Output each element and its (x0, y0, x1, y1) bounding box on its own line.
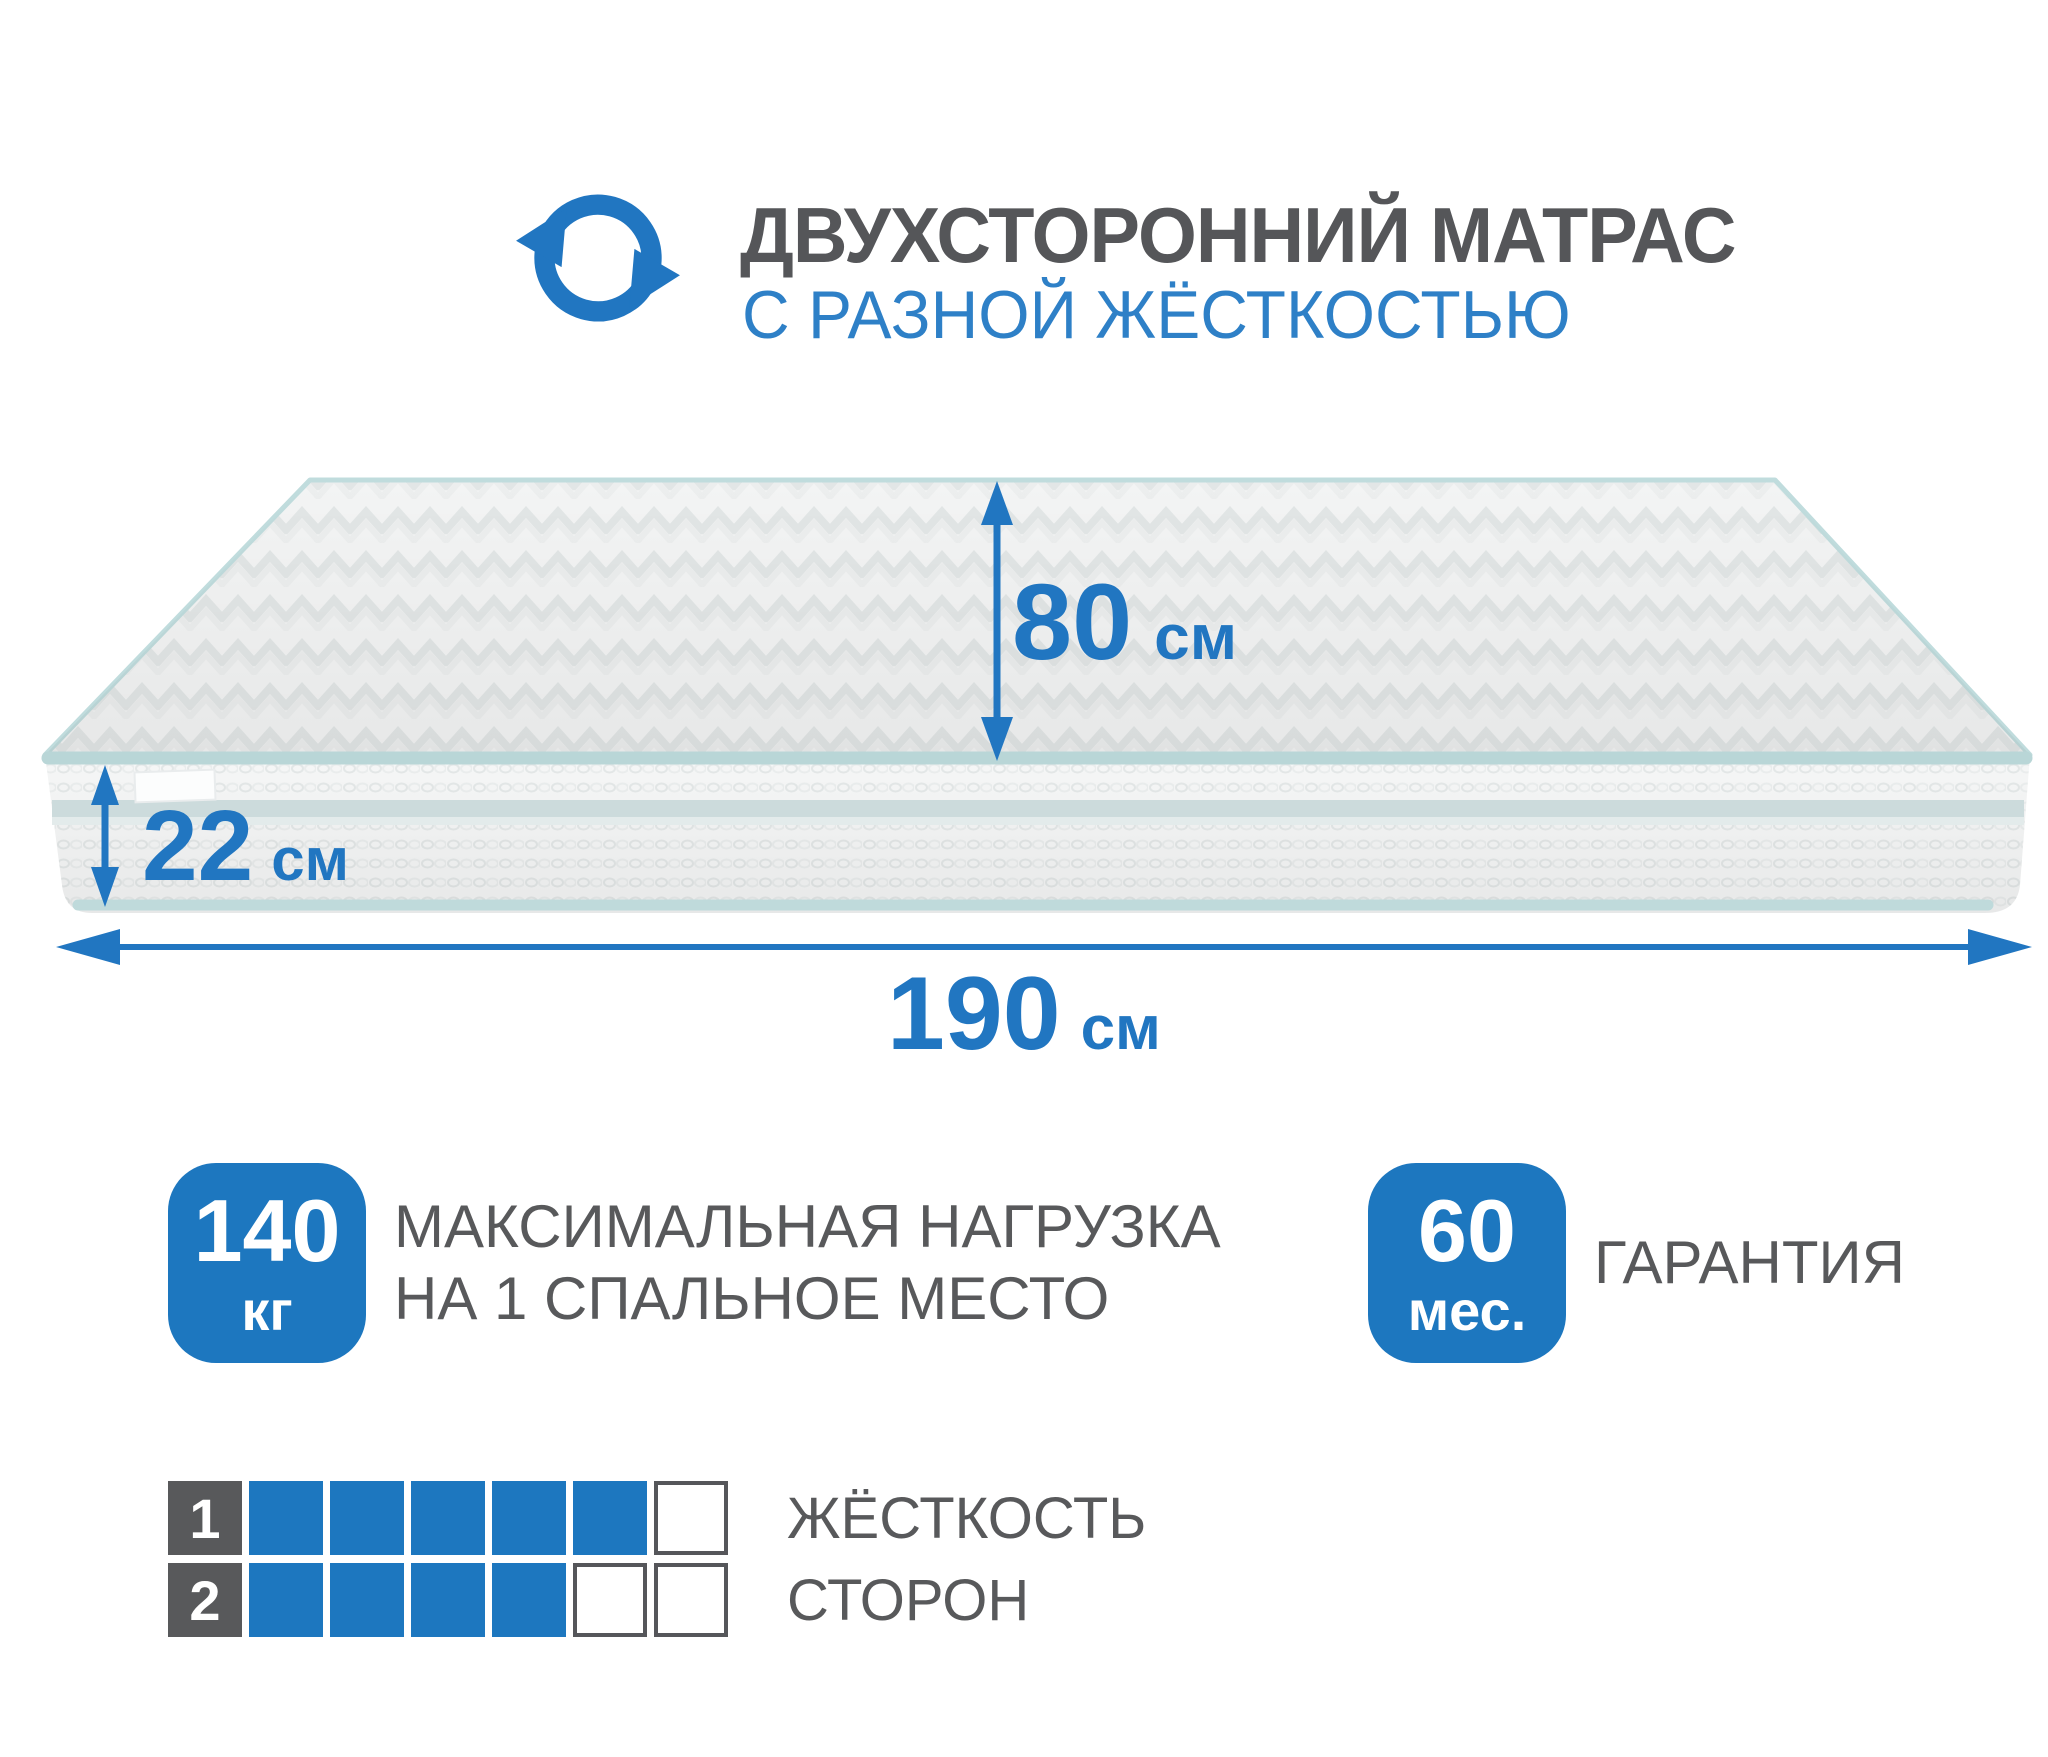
firmness-filled-square (249, 1481, 323, 1555)
max-load-label-line1: МАКСИМАЛЬНАЯ НАГРУЗКА (394, 1191, 1221, 1263)
depth-dimension-label: 80 см (1012, 568, 1237, 676)
firmness-filled-square (411, 1563, 485, 1637)
length-dimension-label: 190 см (814, 962, 1234, 1066)
firmness-scale: 1 ЖЁСТКОСТЬ 2 СТОРОН (168, 1481, 1146, 1637)
firmness-filled-square (492, 1481, 566, 1555)
mattress-illustration (30, 455, 2048, 1000)
firmness-filled-square (330, 1563, 404, 1637)
warranty-unit: мес. (1408, 1283, 1527, 1339)
page-subtitle: С РАЗНОЙ ЖЁСТКОСТЬЮ (742, 276, 1571, 354)
max-load-feature: 140 кг МАКСИМАЛЬНАЯ НАГРУЗКА НА 1 СПАЛЬН… (168, 1163, 1221, 1363)
firmness-filled-square (411, 1481, 485, 1555)
max-load-badge: 140 кг (168, 1163, 366, 1363)
side-number-box: 2 (168, 1563, 242, 1637)
warranty-feature: 60 мес. ГАРАНТИЯ (1368, 1163, 1905, 1363)
firmness-empty-square (654, 1481, 728, 1555)
firmness-squares-side2 (249, 1563, 728, 1637)
mattress-infographic: ДВУХСТОРОННИЙ МАТРАС С РАЗНОЙ ЖЁСТКОСТЬЮ (0, 0, 2048, 1757)
firmness-empty-square (573, 1563, 647, 1637)
firmness-filled-square (249, 1563, 323, 1637)
max-load-unit: кг (241, 1283, 292, 1339)
firmness-label-line2: СТОРОН (787, 1567, 1029, 1634)
firmness-squares-side1 (249, 1481, 728, 1555)
rotate-arrows-icon (512, 182, 684, 334)
firmness-empty-square (654, 1563, 728, 1637)
thickness-dimension-label: 22 см (142, 796, 349, 896)
warranty-label: ГАРАНТИЯ (1594, 1227, 1905, 1299)
warranty-badge: 60 мес. (1368, 1163, 1566, 1363)
max-load-value: 140 (194, 1187, 341, 1275)
firmness-filled-square (492, 1563, 566, 1637)
side-number-box: 1 (168, 1481, 242, 1555)
depth-value: 80 (1012, 568, 1132, 676)
firmness-filled-square (573, 1481, 647, 1555)
firmness-label-line1: ЖЁСТКОСТЬ (787, 1485, 1146, 1552)
page-title: ДВУХСТОРОННИЙ МАТРАС (740, 190, 1736, 281)
length-value: 190 (887, 962, 1061, 1066)
length-unit: см (1081, 998, 1161, 1060)
max-load-label-line2: НА 1 СПАЛЬНОЕ МЕСТО (394, 1263, 1221, 1335)
depth-unit: см (1154, 605, 1237, 669)
firmness-filled-square (330, 1481, 404, 1555)
thickness-unit: см (271, 830, 349, 890)
firmness-row-side1: 1 ЖЁСТКОСТЬ (168, 1481, 1146, 1555)
firmness-row-side2: 2 СТОРОН (168, 1563, 1146, 1637)
warranty-value: 60 (1418, 1187, 1516, 1275)
max-load-label: МАКСИМАЛЬНАЯ НАГРУЗКА НА 1 СПАЛЬНОЕ МЕСТ… (394, 1191, 1221, 1335)
thickness-value: 22 (142, 796, 253, 896)
